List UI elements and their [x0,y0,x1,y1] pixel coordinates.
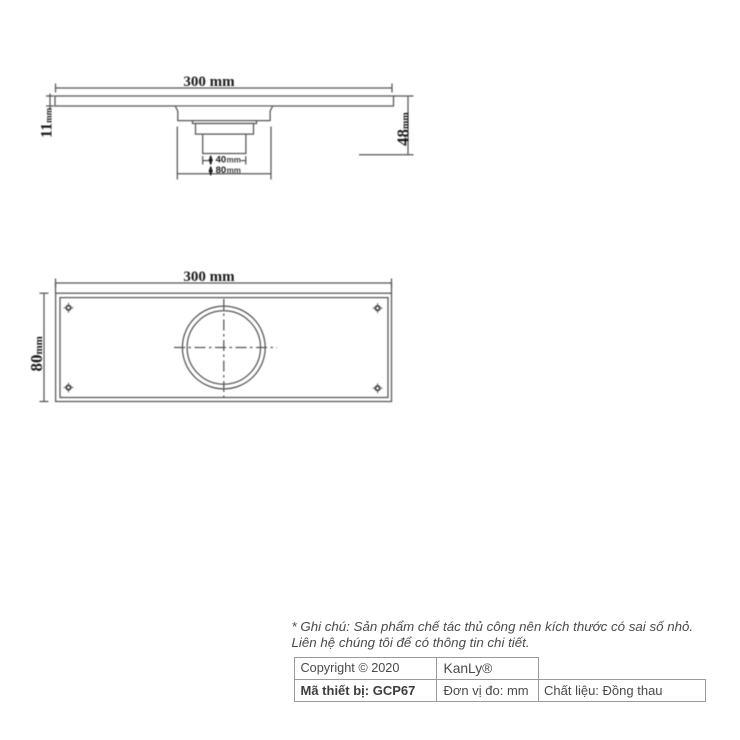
svg-text:80mm: 80mm [27,336,46,371]
svg-text:80: 80 [216,165,227,176]
svg-text:48mm: 48mm [394,112,413,146]
svg-text:40: 40 [216,154,227,165]
svg-text:mm: mm [227,166,241,175]
svg-text:11mm: 11mm [39,107,56,138]
svg-text:mm: mm [227,155,241,164]
